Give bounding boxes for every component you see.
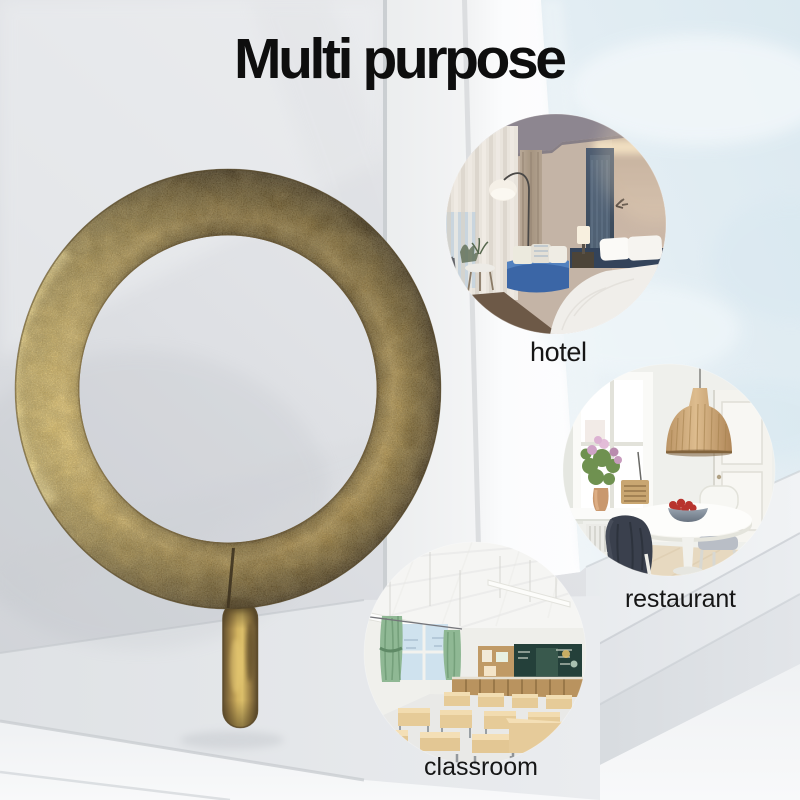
svg-text:classroom: classroom — [424, 753, 538, 781]
svg-text:hotel: hotel — [530, 337, 587, 367]
svg-text:Multi purpose: Multi purpose — [234, 27, 567, 91]
svg-text:restaurant: restaurant — [625, 585, 736, 613]
